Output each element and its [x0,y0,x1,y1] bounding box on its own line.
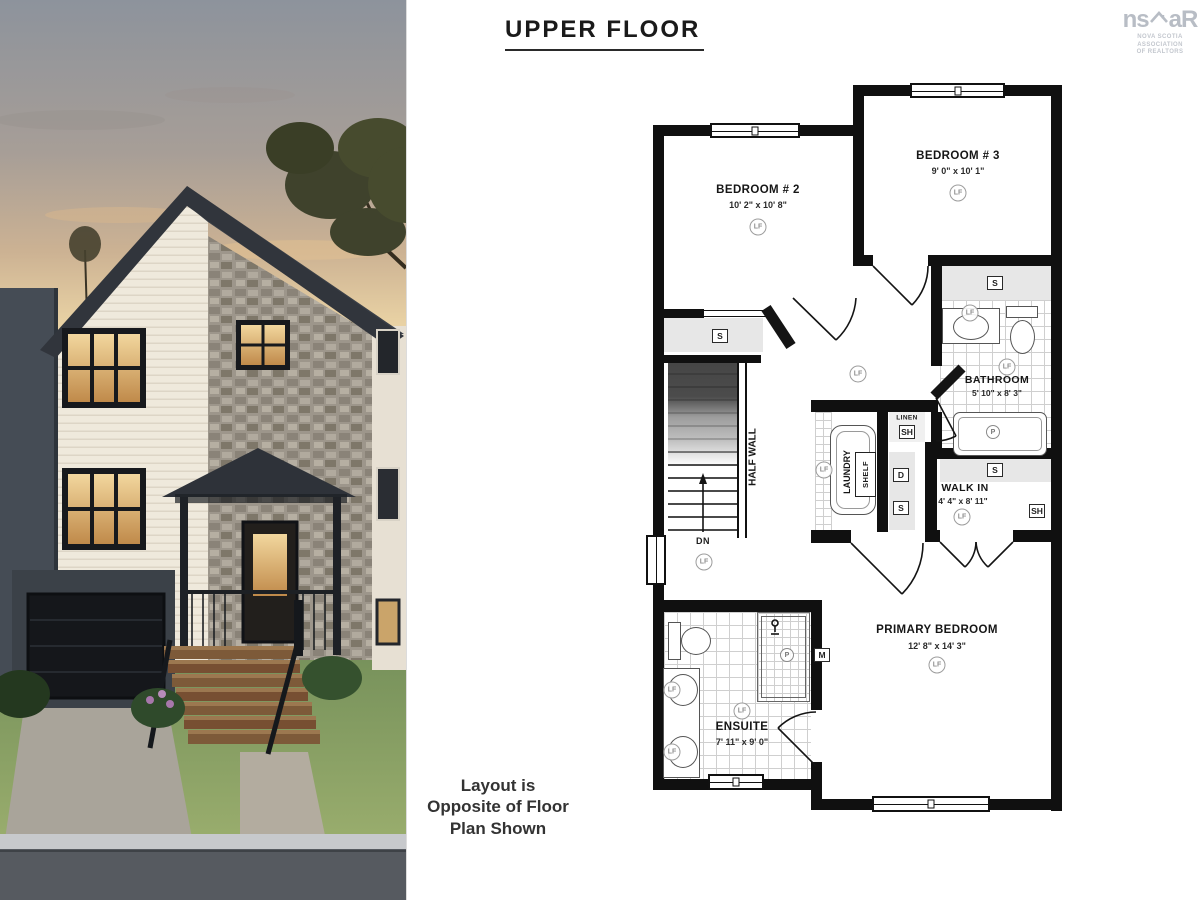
light-fixture-marker: LF [696,554,713,571]
room-dims-bathroom: 5' 10" x 8' 3" [972,388,1022,398]
half-wall-label: HALF WALL [748,428,759,486]
mirror-marker: M [814,648,830,662]
logo-tagline-1: NOVA SCOTIA ASSOCIATION [1122,34,1198,49]
plumbing-marker: P [986,425,1000,439]
light-fixture-marker: LF [929,657,946,674]
house-photo-art [0,0,406,900]
note-line-3: Plan Shown [450,819,546,838]
nsar-logo-wordmark: ns aR [1122,8,1198,32]
house-photo [0,0,406,900]
plumbing-marker: P [780,648,794,662]
stairs-dn-label: DN [696,536,710,546]
logo-tagline-2: OF REALTORS [1122,49,1198,57]
room-label-bedroom3: BEDROOM # 3 [916,150,1000,162]
nsar-logo: ns aR NOVA SCOTIA ASSOCIATION OF REALTOR… [1122,8,1198,57]
doors-overlay [648,80,1068,816]
shelf-label: SHELF [861,461,870,488]
dryer-marker: D [893,468,909,482]
shelf-marker: S [987,463,1003,477]
logo-text-left: ns [1123,8,1149,32]
laundry-label: LAUNDRY [842,450,852,494]
light-fixture-marker: LF [850,366,867,383]
light-fixture-marker: LF [664,744,681,761]
light-fixture-marker: LF [664,682,681,699]
light-fixture-marker: LF [950,185,967,202]
light-fixture-marker: LF [999,359,1016,376]
note-line-1: Layout is [461,776,536,795]
layout-note: Layout is Opposite of Floor Plan Shown [412,775,584,839]
room-dims-walkin: 4' 4" x 8' 11" [938,496,987,506]
room-dims-bedroom3: 9' 0" x 10' 1" [932,166,985,176]
page-title: UPPER FLOOR [505,16,704,51]
logo-text-right: aR [1169,8,1198,32]
room-dims-primary: 12' 8" x 14' 3" [908,641,966,651]
shelf-marker-sh: SH [899,425,915,439]
room-label-bathroom: BATHROOM [965,374,1029,386]
room-label-walkin: WALK IN [941,482,988,494]
room-dims-bedroom2: 10' 2" x 10' 8" [729,200,787,210]
note-line-2: Opposite of Floor [427,797,569,816]
room-label-bedroom2: BEDROOM # 2 [716,184,800,196]
light-fixture-marker: LF [734,703,751,720]
shelf-marker-sh: SH [1029,504,1045,518]
light-fixture-marker: LF [954,509,971,526]
photo-divider [406,0,407,900]
shelf-marker: S [712,329,728,343]
shelf-marker: S [987,276,1003,290]
listing-sheet: UPPER FLOOR ns aR NOVA SCOTIA ASSOCIATIO… [0,0,1200,900]
light-fixture-marker: LF [750,219,767,236]
room-label-ensuite: ENSUITE [716,721,769,733]
shelf-marker: S [893,501,909,515]
light-fixture-marker: LF [962,305,979,322]
laundry-shelf: SHELF [855,452,876,497]
room-dims-ensuite: 7' 11" x 9' 0" [716,737,768,747]
room-label-primary: PRIMARY BEDROOM [876,624,998,636]
roof-icon [1150,10,1168,30]
light-fixture-marker: LF [816,462,833,479]
upper-floor-plan: BEDROOM # 2 10' 2" x 10' 8" BEDROOM # 3 … [648,80,1068,816]
linen-label: LINEN [896,415,918,422]
